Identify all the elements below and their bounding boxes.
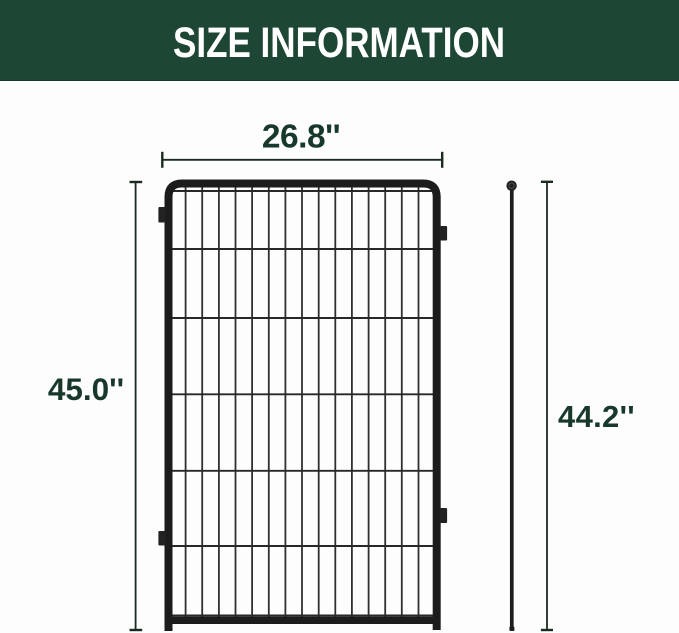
svg-text:26.8'': 26.8'' bbox=[262, 119, 340, 156]
svg-text:44.2'': 44.2'' bbox=[558, 399, 635, 434]
svg-text:45.0'': 45.0'' bbox=[48, 371, 124, 407]
svg-text:SIZE INFORMATION: SIZE INFORMATION bbox=[173, 19, 505, 67]
